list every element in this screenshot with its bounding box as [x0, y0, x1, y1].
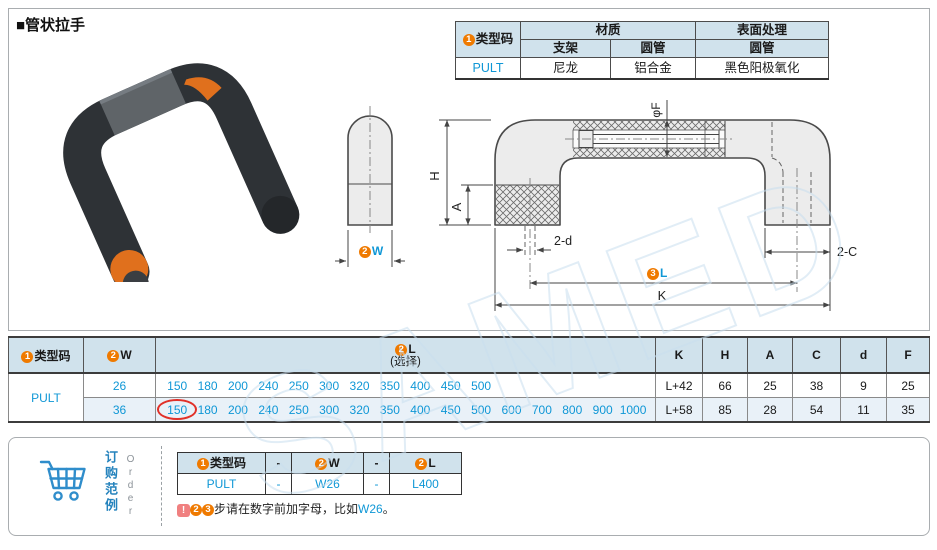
l-values-cell: 150180200240250300320350400450500	[156, 373, 656, 398]
badge-2: 2	[359, 246, 371, 258]
l-value: 500	[466, 403, 496, 417]
l-value: 180	[192, 379, 222, 393]
badge-1: 1	[21, 351, 33, 363]
h-value-cell: 66	[703, 373, 748, 398]
l-value: 700	[527, 403, 557, 417]
l-value: 180	[192, 403, 222, 417]
c-value-cell: 54	[793, 398, 841, 423]
spec-type-value: PULT	[456, 58, 521, 80]
order-header-w: 2W	[292, 453, 364, 474]
l-value: 200	[223, 379, 253, 393]
l-value: 600	[496, 403, 526, 417]
col-header-c: C	[793, 337, 841, 373]
note-period: 。	[383, 502, 395, 516]
l-value: 150	[162, 379, 192, 393]
dim-label-h: H	[427, 171, 442, 180]
spec-bracket-value: 尼龙	[521, 58, 611, 80]
catalog-page: ■管状拉手 1类型码 材质 表面处理 支架 圆管 圆管 PULT 尼龙 铝合金	[0, 0, 937, 550]
d-value-cell: 11	[841, 398, 887, 423]
spec-header-surface: 表面处理	[696, 22, 829, 40]
l-value: 300	[314, 379, 344, 393]
order-value-type: PULT	[178, 474, 266, 495]
badge-2: 2	[190, 504, 202, 516]
dimension-table: 1类型码 2W 2L (选择) K H A C d F PULT 26 1501…	[8, 336, 930, 423]
badge-3: 3	[647, 268, 659, 280]
l-value: 900	[587, 403, 617, 417]
col-header-h: H	[703, 337, 748, 373]
l-value: 400	[405, 403, 435, 417]
dim-label-a: A	[449, 202, 464, 211]
l-value: 250	[284, 403, 314, 417]
col-header-d: d	[841, 337, 887, 373]
spec-header-material: 材质	[521, 22, 696, 40]
badge-1: 1	[197, 458, 209, 470]
order-label-en: Order	[125, 454, 136, 519]
l-value: 150	[162, 403, 192, 417]
spec-subheader-bracket: 支架	[521, 40, 611, 58]
note-text: 步请在数字前加字母，比如	[214, 502, 358, 516]
dim-label-2d: 2-d	[554, 234, 572, 248]
dim-label-k: K	[658, 288, 667, 303]
type-code-cell: PULT	[9, 373, 84, 422]
table-row: 36 1501802002402503003203504004505006007…	[9, 398, 930, 423]
order-header-dash: -	[266, 453, 292, 474]
k-value-cell: L+58	[656, 398, 703, 423]
a-value-cell: 25	[748, 373, 793, 398]
l-value: 500	[466, 379, 496, 393]
divider	[161, 446, 162, 526]
l-value: 320	[344, 403, 374, 417]
l-value: 350	[375, 379, 405, 393]
l-value: 800	[557, 403, 587, 417]
l-value: 450	[436, 403, 466, 417]
col-header-f: F	[887, 337, 930, 373]
page-title: ■管状拉手	[16, 14, 85, 35]
badge-2: 2	[395, 344, 407, 356]
order-header-l: 2L	[390, 453, 462, 474]
order-value-dash: -	[364, 474, 390, 495]
l-value: 300	[314, 403, 344, 417]
badge-2: 2	[415, 458, 427, 470]
dim-label-f: φF	[649, 102, 663, 117]
order-header-dash: -	[364, 453, 390, 474]
l-value: 400	[405, 379, 435, 393]
dim-label-w: 2W	[349, 244, 393, 258]
order-note: !23步请在数字前加字母，比如W26。	[177, 500, 395, 517]
order-value-w: W26	[292, 474, 364, 495]
spec-tube-value: 铝合金	[611, 58, 696, 80]
col-header-a: A	[748, 337, 793, 373]
h-value-cell: 85	[703, 398, 748, 423]
spec-subheader-surface-tube: 圆管	[696, 40, 829, 58]
w-value-cell: 26	[84, 373, 156, 398]
warning-icon: !	[177, 504, 190, 517]
technical-drawing: H A φF 2-d 2-C K	[335, 80, 935, 330]
order-value-dash: -	[266, 474, 292, 495]
spec-header-type: 1类型码	[456, 22, 521, 58]
order-table: 1类型码 - 2W - 2L PULT - W26 - L400	[177, 452, 462, 495]
l-value: 200	[223, 403, 253, 417]
badge-2: 2	[107, 350, 119, 362]
col-header-w: 2W	[84, 337, 156, 373]
dim-label-2c: 2-C	[837, 245, 857, 259]
dim-label-l: 3L	[647, 266, 667, 280]
l-value: 450	[436, 379, 466, 393]
c-value-cell: 38	[793, 373, 841, 398]
badge-3: 3	[202, 504, 214, 516]
order-value-l: L400	[390, 474, 462, 495]
f-value-cell: 35	[887, 398, 930, 423]
product-photo	[12, 42, 332, 282]
col-header-type: 1类型码	[9, 337, 84, 373]
col-header-l: 2L (选择)	[156, 337, 656, 373]
l-value: 1000	[618, 403, 648, 417]
spec-table: 1类型码 材质 表面处理 支架 圆管 圆管 PULT 尼龙 铝合金 黑色阳极氧化	[455, 21, 829, 80]
cart-icon	[37, 454, 93, 510]
l-value: 240	[253, 403, 283, 417]
badge-2: 2	[315, 458, 327, 470]
note-code: W26	[358, 502, 383, 516]
l-values-cell: 1501802002402503003203504004505006007008…	[156, 398, 656, 423]
f-value-cell: 25	[887, 373, 930, 398]
spec-subheader-tube: 圆管	[611, 40, 696, 58]
k-value-cell: L+42	[656, 373, 703, 398]
order-example-label: 订购范例	[101, 450, 120, 514]
badge-1: 1	[463, 34, 475, 46]
col-header-k: K	[656, 337, 703, 373]
l-value: 250	[284, 379, 314, 393]
d-value-cell: 9	[841, 373, 887, 398]
l-value: 320	[344, 379, 374, 393]
order-header-type: 1类型码	[178, 453, 266, 474]
spec-surface-value: 黑色阳极氧化	[696, 58, 829, 80]
drawing-canvas: H A φF 2-d 2-C K	[335, 80, 935, 330]
order-example-box: 订购范例 Order 1类型码 - 2W - 2L PULT - W26 - L…	[8, 437, 930, 536]
table-row: PULT 26 15018020024025030032035040045050…	[9, 373, 930, 398]
a-value-cell: 28	[748, 398, 793, 423]
l-value: 240	[253, 379, 283, 393]
l-value: 350	[375, 403, 405, 417]
w-value-cell: 36	[84, 398, 156, 423]
